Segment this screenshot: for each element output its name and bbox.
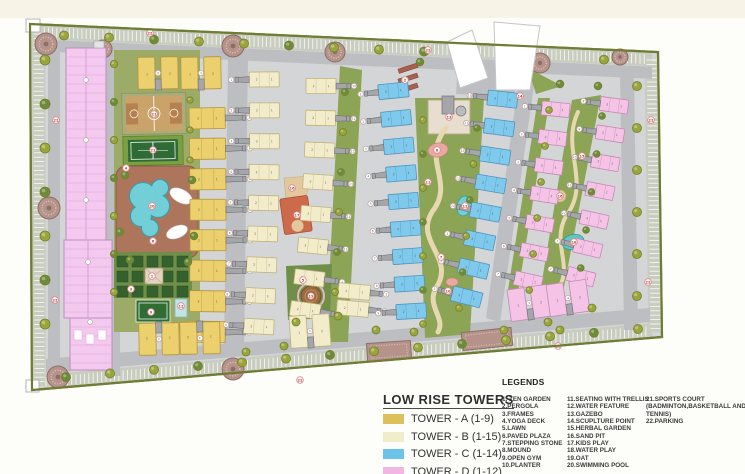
tower-legend-row: TOWER - A (1-9)	[383, 413, 514, 425]
tree	[195, 37, 204, 46]
svg-text:2: 2	[309, 180, 311, 184]
svg-text:1: 1	[324, 180, 326, 184]
svg-text:1: 1	[216, 238, 218, 242]
svg-text:1: 1	[416, 281, 418, 285]
svg-text:6: 6	[372, 229, 374, 233]
svg-text:1: 1	[265, 325, 267, 329]
tree	[634, 325, 643, 334]
svg-text:7: 7	[374, 256, 376, 260]
tree	[600, 55, 609, 64]
tree	[106, 369, 115, 378]
tree	[62, 373, 71, 382]
tree	[466, 197, 473, 204]
svg-text:1: 1	[146, 72, 148, 76]
legend-item: 7.STEPPING STONE	[502, 440, 567, 447]
svg-text:1: 1	[410, 198, 412, 202]
tree	[184, 258, 192, 266]
svg-text:1: 1	[216, 269, 218, 273]
svg-text:2: 2	[395, 200, 397, 204]
svg-text:2: 2	[256, 170, 258, 174]
tree	[40, 187, 50, 197]
svg-text:1: 1	[271, 139, 273, 143]
svg-text:2: 2	[311, 148, 313, 152]
svg-text:6: 6	[229, 231, 231, 235]
tree	[410, 328, 418, 336]
tree	[420, 219, 427, 226]
mound	[446, 278, 458, 286]
svg-text:1: 1	[271, 170, 273, 174]
tree	[474, 125, 481, 132]
tree	[542, 143, 549, 150]
tree	[150, 365, 159, 374]
svg-text:1: 1	[210, 335, 212, 339]
tree	[500, 326, 508, 334]
tower-legend-label: TOWER - A (1-9)	[411, 413, 494, 425]
svg-text:2: 2	[146, 336, 148, 340]
svg-text:10: 10	[468, 93, 472, 97]
svg-text:1: 1	[298, 331, 300, 335]
tower-legend-label: TOWER - C (1-14)	[411, 448, 502, 460]
tree	[370, 347, 379, 356]
legend-marker-number: 22	[53, 118, 59, 122]
legend-item: 8.MOUND	[502, 447, 567, 454]
svg-text:13: 13	[456, 176, 461, 181]
tree	[110, 136, 117, 143]
tree	[502, 336, 511, 345]
legend-item: 14.SCUPLTURE POINT	[567, 418, 646, 425]
tower-legend-rows: TOWER - A (1-9)TOWER - B (1-15)TOWER - C…	[383, 413, 514, 474]
tree	[334, 249, 341, 256]
tree	[414, 343, 423, 352]
tree	[342, 89, 349, 96]
svg-text:2: 2	[313, 84, 315, 88]
legend-item: 5.LAWN	[502, 425, 567, 432]
tree	[416, 58, 424, 66]
tree	[194, 362, 203, 371]
tree	[633, 166, 642, 175]
svg-text:2: 2	[158, 337, 160, 341]
tree	[280, 342, 288, 350]
tree	[633, 250, 642, 259]
low-rise-towers-legend: LOW RISE TOWERS TOWER - A (1-9)TOWER - B…	[383, 391, 514, 474]
tower-legend-row: TOWER - D (1-12)	[383, 466, 514, 474]
tree	[110, 288, 117, 295]
tree	[420, 321, 427, 328]
legends-title: LEGENDS	[502, 377, 743, 387]
tree	[116, 228, 124, 236]
legends-column-1: 1. ZEN GARDEN2.PERGOLA3.FRAMES4.YOGA DEC…	[502, 396, 567, 469]
tree	[292, 318, 300, 326]
tree	[420, 151, 427, 158]
svg-text:1: 1	[189, 72, 191, 76]
svg-text:1: 1	[216, 177, 218, 181]
svg-text:1: 1	[412, 226, 414, 230]
legends-column-3: 21.SPORTS COURT(BADMINTON,BASKETBALL AND…	[646, 396, 743, 469]
svg-text:2: 2	[397, 227, 399, 231]
tree	[590, 328, 599, 337]
tower-color-swatch	[383, 467, 404, 474]
legend-marker-number: 22	[425, 48, 431, 52]
tree	[456, 305, 463, 312]
tower-legend-row: TOWER - B (1-15)	[383, 431, 514, 443]
svg-text:14: 14	[347, 215, 351, 219]
legend-item: 3.FRAMES	[502, 411, 567, 418]
svg-text:1: 1	[328, 84, 330, 88]
tree	[470, 161, 477, 168]
legend-marker-number: 22	[147, 31, 153, 35]
svg-text:3: 3	[199, 336, 201, 340]
svg-text:2: 2	[403, 310, 405, 314]
legend-marker-number: 17	[294, 213, 300, 217]
svg-text:1: 1	[216, 299, 218, 303]
tree	[110, 60, 117, 67]
svg-text:1: 1	[230, 78, 232, 82]
tree	[375, 45, 384, 54]
svg-text:13: 13	[349, 182, 353, 186]
svg-text:5: 5	[230, 200, 232, 204]
legend-marker-number: 22	[297, 378, 303, 382]
svg-text:5: 5	[369, 202, 371, 206]
tree	[556, 80, 564, 88]
tree	[40, 55, 50, 65]
tree	[126, 256, 134, 264]
legend-marker-number: 22	[648, 118, 654, 122]
tree	[420, 185, 427, 192]
legend-marker-number: 16	[557, 194, 563, 198]
legend-marker-number: 19	[308, 294, 314, 298]
tree	[238, 358, 247, 367]
svg-text:15: 15	[344, 247, 348, 251]
legend-marker-number: 22	[645, 280, 651, 284]
legend-marker-number: 13	[446, 115, 452, 119]
tree	[121, 171, 129, 179]
tree	[40, 231, 50, 241]
tree	[285, 41, 294, 50]
tree	[593, 151, 600, 158]
tree	[187, 97, 193, 103]
svg-text:2: 2	[198, 208, 200, 212]
tree	[334, 312, 342, 320]
tree	[282, 354, 291, 363]
legend-item: 6.PAVED PLAZA	[502, 433, 567, 440]
low-rise-towers-title: LOW RISE TOWERS	[383, 392, 514, 409]
svg-text:12: 12	[460, 149, 464, 154]
tree	[588, 304, 596, 312]
legend-marker-number: 16	[289, 186, 295, 190]
legend-marker-number: 15	[579, 154, 585, 158]
svg-text:11: 11	[464, 121, 468, 125]
tree	[583, 227, 590, 234]
legend-marker-number: 14	[517, 94, 523, 98]
tree	[526, 287, 533, 294]
tree	[336, 209, 343, 216]
svg-text:2: 2	[252, 293, 254, 297]
tree	[40, 319, 50, 329]
svg-text:9: 9	[157, 71, 159, 75]
svg-text:2: 2	[256, 78, 258, 82]
tree	[187, 127, 193, 133]
tree	[242, 348, 250, 356]
tree	[633, 82, 642, 91]
svg-text:2: 2	[212, 72, 214, 76]
svg-text:1: 1	[418, 309, 420, 313]
legend-item: 20.SWIMMING POOL	[567, 462, 646, 469]
tree	[110, 212, 117, 219]
svg-text:12: 12	[351, 149, 355, 153]
svg-text:2: 2	[256, 139, 258, 143]
legends-column-2: 11.SEATING WITH TRELLIS12.WATER FEATURE1…	[567, 396, 646, 469]
tree	[187, 157, 193, 163]
tree	[633, 292, 642, 301]
legend-marker-number: 22	[52, 298, 58, 302]
tree	[463, 233, 470, 240]
tree	[340, 129, 347, 136]
tree	[538, 179, 545, 186]
svg-text:10: 10	[352, 84, 356, 88]
tree	[110, 98, 117, 105]
svg-text:1: 1	[414, 254, 416, 258]
svg-text:1: 1	[200, 71, 202, 75]
svg-text:2: 2	[198, 238, 200, 242]
legend-marker-number: 18	[571, 240, 577, 244]
legend-item: 15.HERBAL GARDEN	[567, 425, 646, 432]
tree	[420, 287, 427, 294]
svg-text:9: 9	[225, 323, 227, 327]
corner-gate	[26, 19, 40, 32]
legend-item: 2.PERGOLA	[502, 403, 567, 410]
svg-text:10: 10	[573, 155, 578, 160]
legend-marker-number: 21	[151, 112, 157, 116]
tree	[105, 33, 114, 42]
legend-item: 21.SPORTS COURT	[646, 396, 743, 403]
legend-item: 13.GAZEBO	[567, 411, 646, 418]
legend-item: TENNIS)	[646, 411, 743, 418]
tree	[556, 326, 564, 334]
legend-item: 19.OAT	[567, 455, 646, 462]
svg-text:2: 2	[399, 255, 401, 259]
svg-text:2: 2	[307, 211, 309, 215]
tree	[40, 99, 50, 109]
tree	[544, 318, 552, 326]
tree	[60, 31, 69, 40]
legends-columns: 1. ZEN GARDEN2.PERGOLA3.FRAMES4.YOGA DEC…	[502, 396, 743, 469]
tree	[110, 250, 117, 257]
tree	[459, 269, 466, 276]
tree	[40, 143, 50, 153]
legend-marker-number: 21	[150, 148, 156, 152]
tower-color-swatch	[383, 432, 404, 442]
tree	[420, 253, 427, 260]
tree	[530, 251, 537, 258]
svg-text:2: 2	[255, 201, 257, 205]
tree	[633, 124, 642, 133]
svg-text:11: 11	[352, 117, 356, 121]
legend-marker-number: 11	[425, 180, 431, 184]
svg-text:1: 1	[216, 208, 218, 212]
svg-text:1: 1	[216, 147, 218, 151]
tree	[326, 350, 335, 359]
svg-text:2: 2	[253, 263, 255, 267]
tree	[577, 265, 584, 272]
svg-text:3: 3	[230, 139, 232, 143]
svg-text:1: 1	[326, 148, 328, 152]
svg-text:5: 5	[309, 329, 311, 333]
svg-text:1: 1	[270, 201, 272, 205]
svg-text:2: 2	[169, 72, 171, 76]
legend-marker-number: 10	[445, 289, 451, 293]
legend-item: 10.PLANTER	[502, 462, 567, 469]
svg-text:2: 2	[401, 282, 403, 286]
legend-item: 9.OPEN GYM	[502, 455, 567, 462]
svg-text:1: 1	[215, 116, 217, 120]
legend-item: 22.PARKING	[646, 418, 743, 425]
svg-text:2: 2	[254, 232, 256, 236]
svg-text:7: 7	[228, 262, 230, 266]
svg-text:1: 1	[327, 116, 329, 120]
svg-text:2: 2	[256, 108, 258, 112]
svg-text:1: 1	[267, 294, 269, 298]
tree	[534, 215, 541, 222]
svg-text:2: 2	[187, 335, 189, 339]
svg-text:1: 1	[271, 77, 273, 81]
tree	[599, 113, 606, 120]
svg-text:8: 8	[375, 284, 377, 288]
tree	[588, 189, 595, 196]
tree	[240, 39, 249, 48]
tree	[372, 326, 380, 334]
legend-item: 1. ZEN GARDEN	[502, 396, 567, 403]
svg-text:9: 9	[377, 311, 379, 315]
svg-text:2: 2	[198, 147, 200, 151]
tree	[330, 43, 339, 52]
legend-item: 4.YOGA DECK	[502, 418, 567, 425]
tower-color-swatch	[383, 414, 404, 424]
svg-text:1: 1	[322, 213, 324, 217]
tree	[594, 82, 602, 90]
legend-item: 11.SEATING WITH TRELLIS	[567, 396, 646, 403]
svg-text:4: 4	[230, 170, 232, 174]
svg-text:2: 2	[312, 116, 314, 120]
svg-text:2: 2	[321, 329, 323, 333]
tower-color-swatch	[383, 449, 404, 459]
tree	[40, 275, 50, 285]
legend-item: 18.WATER PLAY	[567, 447, 646, 454]
legend-item: 12.WATER FEATURE	[567, 403, 646, 410]
tree	[633, 208, 642, 217]
tower-legend-row: TOWER - C (1-14)	[383, 448, 514, 460]
svg-text:1: 1	[271, 108, 273, 112]
svg-text:1: 1	[269, 232, 271, 236]
svg-text:1: 1	[268, 263, 270, 267]
legends-block: LEGENDS 1. ZEN GARDEN2.PERGOLA3.FRAMES4.…	[502, 377, 743, 469]
legend-marker-number: 12	[178, 304, 184, 308]
tower-legend-label: TOWER - B (1-15)	[411, 431, 501, 443]
tree	[110, 174, 117, 181]
tree	[338, 169, 345, 176]
page-top-band	[0, 0, 745, 18]
tree	[546, 107, 553, 114]
site-plan-page: 2112122132142152162172182112122132142152…	[0, 0, 745, 474]
legend-item: 17.KIDS PLAY	[567, 440, 646, 447]
svg-text:2: 2	[197, 116, 199, 120]
high-rise-tower	[64, 41, 112, 370]
tree	[190, 232, 198, 240]
svg-text:2: 2	[198, 177, 200, 181]
svg-text:1: 1	[169, 336, 171, 340]
svg-text:2: 2	[198, 269, 200, 273]
tower-legend-label: TOWER - D (1-12)	[411, 466, 502, 474]
svg-text:2: 2	[250, 324, 252, 328]
legend-marker-number: 12	[462, 204, 468, 208]
tree	[458, 339, 467, 348]
tree	[332, 289, 339, 296]
svg-text:2: 2	[198, 299, 200, 303]
svg-text:8: 8	[226, 292, 228, 296]
swimming-pool-complex	[116, 166, 198, 258]
tree	[188, 176, 196, 184]
legend-item: (BADMINTON,BASKETBALL AND	[646, 403, 743, 410]
legend-marker-number: 20	[149, 204, 155, 208]
tree	[546, 332, 555, 341]
svg-text:2: 2	[230, 109, 232, 113]
legend-item: 16.SAND PIT	[567, 433, 646, 440]
tree	[420, 117, 427, 124]
